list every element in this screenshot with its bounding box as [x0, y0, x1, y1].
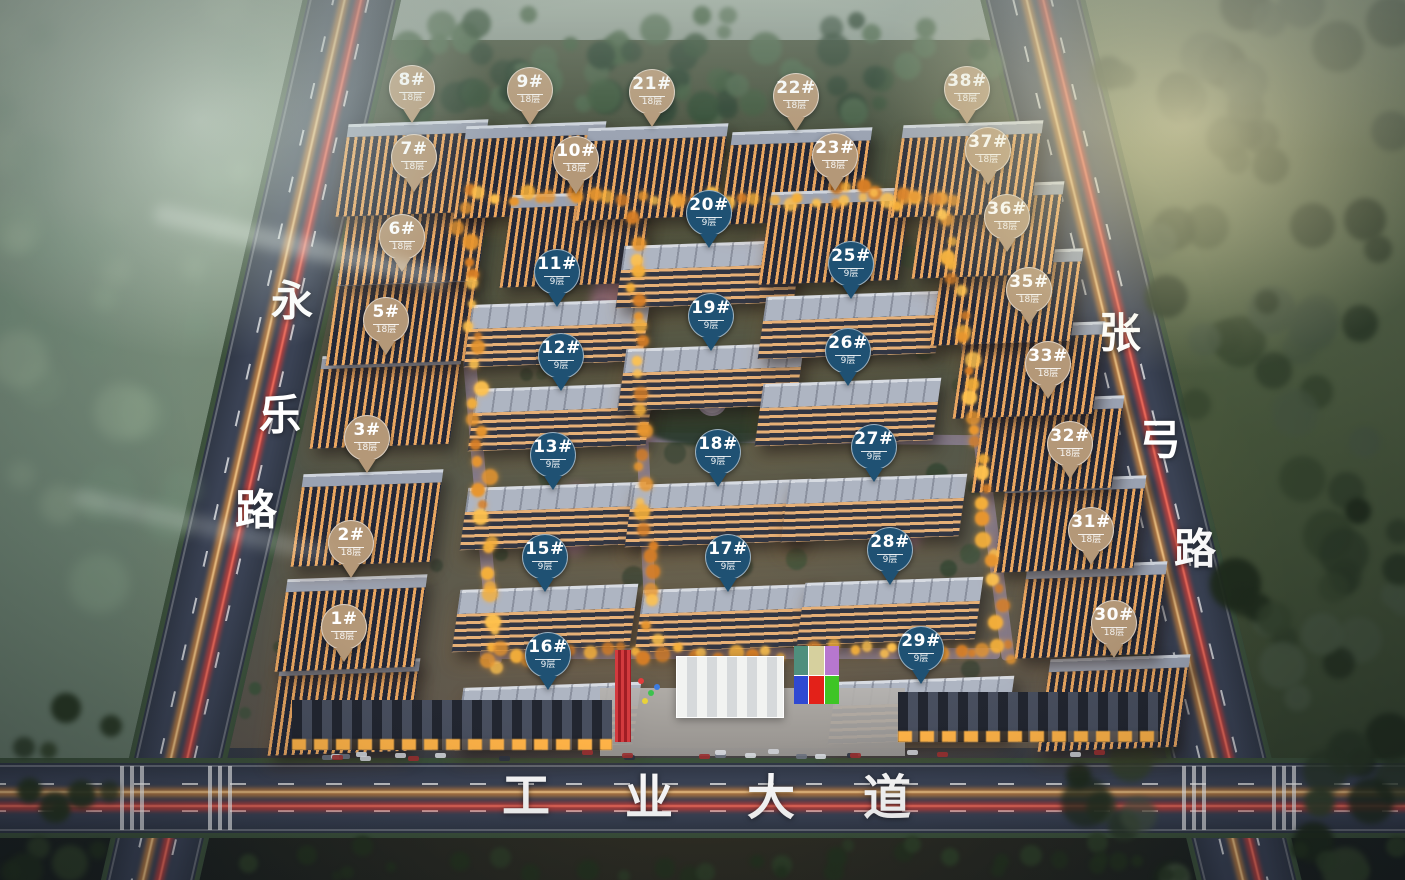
- marker-floors: 9层: [914, 655, 929, 665]
- marker-floors: 9层: [546, 461, 561, 471]
- marker-pointer: [521, 111, 539, 125]
- marker-pointer: [1039, 385, 1057, 399]
- marker-pointer: [958, 110, 976, 124]
- marker-pointer: [881, 571, 899, 585]
- marker-balloon: 38#18层: [944, 66, 990, 112]
- marker-balloon: 18#9层: [695, 429, 741, 475]
- marker-floors: 18层: [997, 223, 1017, 233]
- marker-pointer: [539, 676, 557, 690]
- marker-number: 28#: [870, 534, 909, 552]
- marker-pointer: [393, 258, 411, 272]
- marker-floors: 9层: [867, 453, 882, 463]
- marker-number: 21#: [632, 76, 671, 94]
- marker-floors: 18层: [1060, 450, 1080, 460]
- marker-pointer: [826, 177, 844, 191]
- marker-number: 9#: [516, 74, 543, 92]
- marker-balloon: 25#9层: [828, 241, 874, 287]
- marker-number: 29#: [901, 633, 940, 651]
- building-marker-35[interactable]: 35#18层: [1006, 267, 1052, 325]
- building-marker-6[interactable]: 6#18层: [379, 214, 425, 272]
- marker-floors: 18层: [1038, 370, 1058, 380]
- marker-floors: 18层: [786, 102, 806, 112]
- marker-balloon: 19#9层: [688, 293, 734, 339]
- marker-number: 25#: [831, 248, 870, 266]
- building-marker-37[interactable]: 37#18层: [965, 127, 1011, 185]
- marker-number: 36#: [987, 201, 1026, 219]
- building-marker-13[interactable]: 13#9层: [530, 432, 576, 490]
- marker-floors: 18层: [642, 98, 662, 108]
- marker-number: 22#: [776, 80, 815, 98]
- marker-number: 17#: [708, 541, 747, 559]
- marker-floors: 18层: [566, 165, 586, 175]
- marker-number: 6#: [388, 221, 415, 239]
- marker-floors: 9层: [702, 219, 717, 229]
- building-marker-12[interactable]: 12#9层: [538, 333, 584, 391]
- marker-pointer: [377, 341, 395, 355]
- building-marker-3[interactable]: 3#18层: [344, 415, 390, 473]
- marker-balloon: 33#18层: [1025, 341, 1071, 387]
- marker-pointer: [719, 578, 737, 592]
- building-marker-10[interactable]: 10#18层: [553, 136, 599, 194]
- marker-number: 32#: [1050, 428, 1089, 446]
- building-marker-23[interactable]: 23#18层: [812, 133, 858, 191]
- marker-floors: 9层: [883, 556, 898, 566]
- marker-balloon: 20#9层: [686, 190, 732, 236]
- marker-number: 27#: [854, 431, 893, 449]
- marker-pointer: [342, 564, 360, 578]
- marker-number: 18#: [698, 436, 737, 454]
- building-marker-9[interactable]: 9#18层: [507, 67, 553, 125]
- marker-pointer: [1082, 551, 1100, 565]
- building-marker-11[interactable]: 11#9层: [534, 249, 580, 307]
- marker-pointer: [1020, 311, 1038, 325]
- building-marker-2[interactable]: 2#18层: [328, 520, 374, 578]
- marker-balloon: 2#18层: [328, 520, 374, 566]
- marker-balloon: 17#9层: [705, 534, 751, 580]
- marker-number: 12#: [541, 340, 580, 358]
- marker-pointer: [979, 171, 997, 185]
- marker-pointer: [567, 180, 585, 194]
- marker-number: 10#: [556, 143, 595, 161]
- marker-floors: 18层: [978, 156, 998, 166]
- marker-balloon: 12#9层: [538, 333, 584, 379]
- masterplan-scene: 永乐路张弓路工业大道 8#18层38#18层9#18层21#18层22#18层3…: [0, 0, 1405, 880]
- building-marker-25[interactable]: 25#9层: [828, 241, 874, 299]
- marker-balloon: 30#18层: [1091, 600, 1137, 646]
- marker-number: 33#: [1028, 348, 1067, 366]
- marker-balloon: 10#18层: [553, 136, 599, 182]
- marker-pointer: [536, 578, 554, 592]
- marker-number: 5#: [372, 304, 399, 322]
- building-marker-20[interactable]: 20#9层: [686, 190, 732, 248]
- marker-floors: 9层: [550, 278, 565, 288]
- marker-pointer: [405, 178, 423, 192]
- marker-pointer: [842, 285, 860, 299]
- building-marker-15[interactable]: 15#9层: [522, 534, 568, 592]
- marker-number: 8#: [398, 72, 425, 90]
- marker-floors: 9层: [541, 661, 556, 671]
- marker-number: 31#: [1071, 514, 1110, 532]
- marker-balloon: 26#9层: [825, 328, 871, 374]
- marker-pointer: [1061, 465, 1079, 479]
- marker-pointer: [358, 459, 376, 473]
- marker-pointer: [709, 473, 727, 487]
- building-marker-21[interactable]: 21#18层: [629, 69, 675, 127]
- marker-balloon: 6#18层: [379, 214, 425, 260]
- marker-floors: 9层: [538, 563, 553, 573]
- marker-pointer: [544, 476, 562, 490]
- marker-number: 15#: [525, 541, 564, 559]
- marker-pointer: [403, 109, 421, 123]
- marker-number: 30#: [1094, 607, 1133, 625]
- marker-floors: 18层: [825, 162, 845, 172]
- marker-pointer: [865, 468, 883, 482]
- marker-balloon: 16#9层: [525, 632, 571, 678]
- marker-floors: 18层: [402, 94, 422, 104]
- marker-floors: 9层: [704, 322, 719, 332]
- marker-balloon: 11#9层: [534, 249, 580, 295]
- marker-number: 26#: [828, 335, 867, 353]
- marker-number: 3#: [353, 422, 380, 440]
- marker-number: 38#: [947, 73, 986, 91]
- marker-floors: 9层: [711, 458, 726, 468]
- marker-number: 35#: [1009, 274, 1048, 292]
- marker-floors: 18层: [1081, 536, 1101, 546]
- building-marker-28[interactable]: 28#9层: [867, 527, 913, 585]
- building-marker-32[interactable]: 32#18层: [1047, 421, 1093, 479]
- building-marker-38[interactable]: 38#18层: [944, 66, 990, 124]
- marker-pointer: [335, 648, 353, 662]
- marker-floors: 18层: [1104, 629, 1124, 639]
- marker-balloon: 7#18层: [391, 134, 437, 180]
- marker-balloon: 37#18层: [965, 127, 1011, 173]
- marker-pointer: [839, 372, 857, 386]
- building-marker-33[interactable]: 33#18层: [1025, 341, 1071, 399]
- marker-pointer: [552, 377, 570, 391]
- marker-number: 23#: [815, 140, 854, 158]
- marker-balloon: 5#18层: [363, 297, 409, 343]
- marker-balloon: 28#9层: [867, 527, 913, 573]
- marker-balloon: 29#9层: [898, 626, 944, 672]
- marker-floors: 18层: [957, 95, 977, 105]
- marker-balloon: 36#18层: [984, 194, 1030, 240]
- marker-floors: 18层: [520, 96, 540, 106]
- building-marker-8[interactable]: 8#18层: [389, 65, 435, 123]
- marker-pointer: [998, 238, 1016, 252]
- marker-pointer: [702, 337, 720, 351]
- marker-number: 1#: [330, 611, 357, 629]
- marker-floors: 9层: [554, 362, 569, 372]
- building-marker-17[interactable]: 17#9层: [705, 534, 751, 592]
- marker-balloon: 22#18层: [773, 73, 819, 119]
- marker-balloon: 21#18层: [629, 69, 675, 115]
- marker-pointer: [787, 117, 805, 131]
- marker-number: 20#: [689, 197, 728, 215]
- building-marker-22[interactable]: 22#18层: [773, 73, 819, 131]
- marker-balloon: 13#9层: [530, 432, 576, 478]
- marker-balloon: 35#18层: [1006, 267, 1052, 313]
- marker-pointer: [700, 234, 718, 248]
- marker-balloon: 3#18层: [344, 415, 390, 461]
- marker-pointer: [643, 113, 661, 127]
- building-marker-7[interactable]: 7#18层: [391, 134, 437, 192]
- marker-balloon: 9#18层: [507, 67, 553, 113]
- marker-number: 2#: [337, 527, 364, 545]
- building-marker-29[interactable]: 29#9层: [898, 626, 944, 684]
- marker-floors: 9层: [844, 270, 859, 280]
- marker-balloon: 1#18层: [321, 604, 367, 650]
- building-marker-31[interactable]: 31#18层: [1068, 507, 1114, 565]
- marker-number: 37#: [968, 134, 1007, 152]
- marker-balloon: 15#9层: [522, 534, 568, 580]
- marker-balloon: 27#9层: [851, 424, 897, 470]
- marker-floors: 18层: [1019, 296, 1039, 306]
- building-marker-30[interactable]: 30#18层: [1091, 600, 1137, 658]
- building-markers-layer: 8#18层38#18层9#18层21#18层22#18层37#18层23#18层…: [0, 0, 1405, 880]
- building-marker-36[interactable]: 36#18层: [984, 194, 1030, 252]
- building-marker-5[interactable]: 5#18层: [363, 297, 409, 355]
- marker-number: 16#: [528, 639, 567, 657]
- building-marker-27[interactable]: 27#9层: [851, 424, 897, 482]
- marker-floors: 9层: [841, 357, 856, 367]
- building-marker-16[interactable]: 16#9层: [525, 632, 571, 690]
- building-marker-1[interactable]: 1#18层: [321, 604, 367, 662]
- marker-floors: 18层: [357, 444, 377, 454]
- marker-number: 7#: [400, 141, 427, 159]
- marker-balloon: 8#18层: [389, 65, 435, 111]
- marker-balloon: 32#18层: [1047, 421, 1093, 467]
- marker-floors: 18层: [334, 633, 354, 643]
- marker-balloon: 31#18层: [1068, 507, 1114, 553]
- building-marker-26[interactable]: 26#9层: [825, 328, 871, 386]
- marker-floors: 18层: [341, 549, 361, 559]
- marker-number: 19#: [691, 300, 730, 318]
- building-marker-19[interactable]: 19#9层: [688, 293, 734, 351]
- marker-pointer: [912, 670, 930, 684]
- marker-pointer: [548, 293, 566, 307]
- marker-floors: 9层: [721, 563, 736, 573]
- marker-number: 11#: [537, 256, 576, 274]
- marker-pointer: [1105, 644, 1123, 658]
- marker-number: 13#: [533, 439, 572, 457]
- building-marker-18[interactable]: 18#9层: [695, 429, 741, 487]
- marker-floors: 18层: [404, 163, 424, 173]
- marker-balloon: 23#18层: [812, 133, 858, 179]
- marker-floors: 18层: [392, 243, 412, 253]
- marker-floors: 18层: [376, 326, 396, 336]
